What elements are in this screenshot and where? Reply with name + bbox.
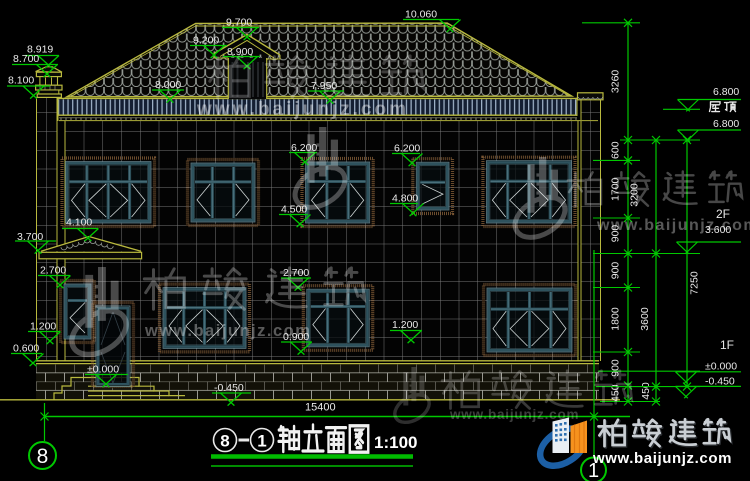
svg-text:www.baijunjz.com: www.baijunjz.com (592, 450, 732, 467)
svg-text:900: 900 (610, 262, 622, 280)
svg-text:0.600: 0.600 (13, 343, 39, 355)
svg-text:1.200: 1.200 (392, 319, 418, 331)
svg-text:8: 8 (37, 445, 49, 468)
svg-text:6.200: 6.200 (394, 143, 420, 155)
svg-text:www.baijunjz.com: www.baijunjz.com (144, 322, 311, 340)
svg-text:7250: 7250 (689, 271, 701, 295)
svg-text:1800: 1800 (610, 307, 622, 331)
svg-text:1: 1 (257, 432, 266, 451)
svg-text:450: 450 (640, 382, 652, 400)
svg-text:1.200: 1.200 (30, 321, 56, 333)
svg-text:8: 8 (220, 432, 229, 451)
svg-text:-0.450: -0.450 (705, 376, 735, 388)
svg-text:9.200: 9.200 (193, 35, 219, 47)
svg-text:±0.000: ±0.000 (705, 361, 737, 373)
svg-text:4.100: 4.100 (66, 217, 92, 229)
svg-text:3260: 3260 (610, 70, 622, 94)
svg-text:2.700: 2.700 (40, 265, 66, 277)
svg-text:-0.450: -0.450 (214, 382, 244, 394)
svg-text:www.baijunjz.com: www.baijunjz.com (196, 99, 409, 120)
svg-text:15400: 15400 (305, 402, 336, 414)
svg-text:8.100: 8.100 (8, 75, 34, 87)
svg-text:8.700: 8.700 (13, 53, 39, 65)
svg-text:3600: 3600 (639, 307, 651, 331)
svg-text:8.000: 8.000 (155, 79, 181, 91)
svg-text:4.800: 4.800 (392, 193, 418, 205)
svg-text:10.060: 10.060 (405, 9, 437, 21)
svg-text:9.700: 9.700 (226, 17, 252, 29)
svg-text:±0.000: ±0.000 (87, 364, 119, 376)
svg-text:600: 600 (610, 141, 622, 159)
svg-text:www.baijunjz.com: www.baijunjz.com (596, 217, 750, 234)
svg-text:6.800: 6.800 (713, 86, 739, 98)
svg-text:1:100: 1:100 (374, 433, 417, 452)
svg-text:1F: 1F (720, 338, 734, 352)
svg-text:6.800: 6.800 (713, 118, 739, 130)
